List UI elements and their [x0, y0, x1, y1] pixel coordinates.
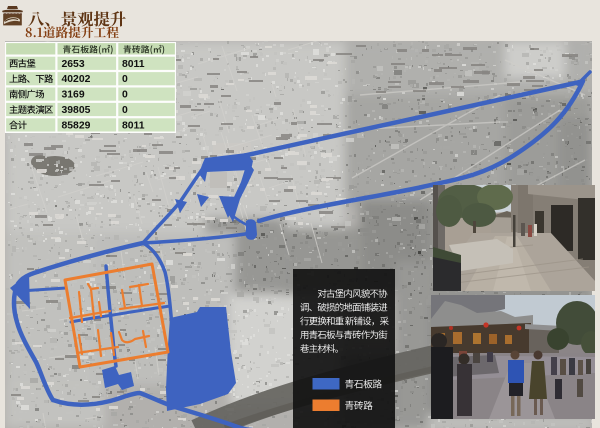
svg-text:3169: 3169	[62, 90, 85, 101]
svg-text:0: 0	[122, 90, 128, 101]
svg-text:0: 0	[122, 105, 128, 116]
svg-text:85829: 85829	[62, 120, 91, 131]
svg-text:8011: 8011	[122, 59, 145, 70]
svg-text:2653: 2653	[62, 59, 85, 70]
svg-text:8011: 8011	[122, 120, 145, 131]
svg-text:40202: 40202	[62, 74, 91, 85]
svg-text:39805: 39805	[62, 105, 91, 116]
svg-text:0: 0	[122, 74, 128, 85]
